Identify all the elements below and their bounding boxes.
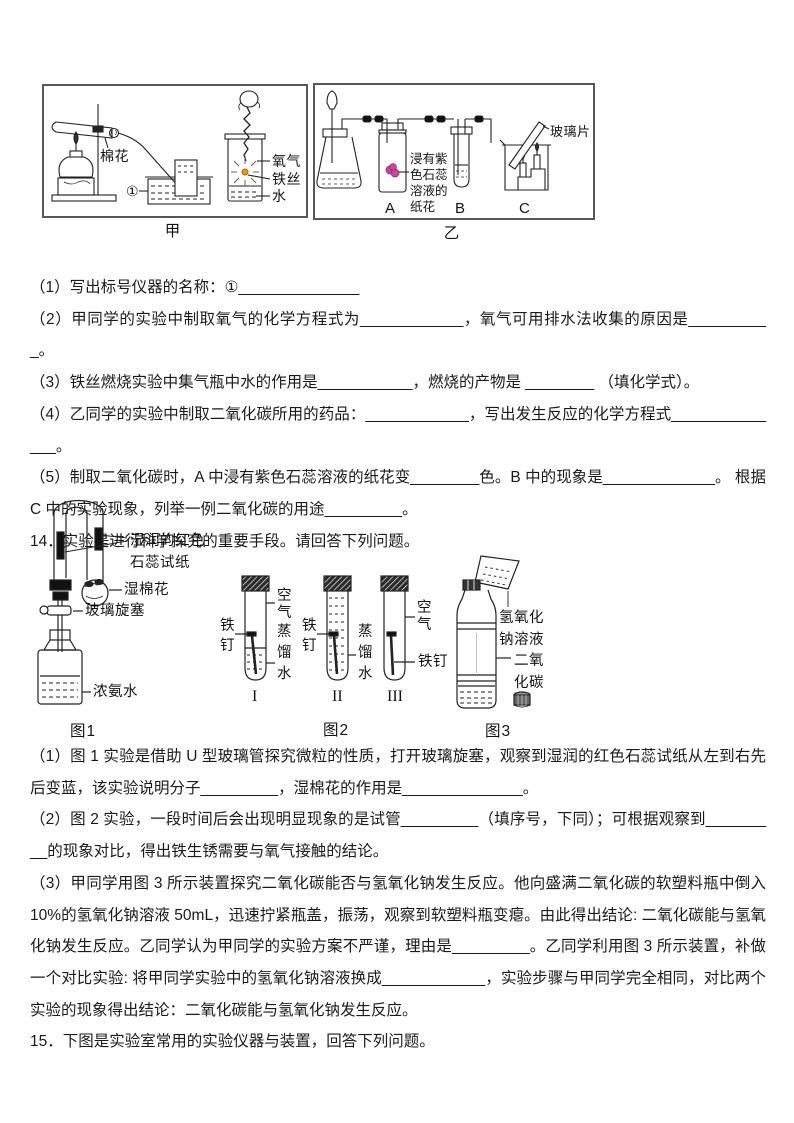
label-water: 水 [272,188,287,205]
label-cotton: 棉花 [100,148,129,165]
label-ammonia: 浓氨水 [93,684,138,701]
label-circle1: ① [126,183,139,200]
label-distilled-water-2: 蒸 馏 水 [358,622,373,685]
worksheet-page: 棉花 ① 氧气 铁丝 水 甲 [0,0,794,1123]
label-nail-3: 铁钉 [418,654,448,671]
q13-part-3: （3）铁丝燃烧实验中集气瓶中水的作用是___________，燃烧的产物是 __… [30,367,766,399]
label-glass-slide: 玻璃片 [550,123,591,140]
q14-part-3: （3）甲同学用图 3 所示装置探究二氧化碳能否与氢氧化钠发生反应。他向盛满二氧化… [30,868,766,1027]
label-bottle-a: A [385,200,396,217]
q13-part-1: （1）写出标号仪器的名称：①______________ [30,272,766,304]
caption-fig3: 图3 [478,719,518,741]
diagram-jia-box: 棉花 ① 氧气 铁丝 水 [42,84,308,218]
diagram-yi-box: 浸有紫 色石蕊 溶液的 纸花 玻璃片 A B C [313,83,595,220]
figure-2: 铁 钉 空 气 蒸 馏 水 铁 钉 蒸 馏 水 空 气 铁钉 I II III … [218,570,453,740]
numeral-iii: III [387,688,403,706]
figure-3: 氢氧化 钠溶液 二氧 化碳 图3 [455,555,575,740]
q14-part-1: （1）图 1 实验是借助 U 型玻璃管探究微粒的性质，打开玻璃旋塞，观察到湿润的… [30,741,766,804]
q13-part-2: （2）甲同学的实验中制取氧气的化学方程式为____________，氧气可用排水… [30,304,766,367]
label-air-1: 空 气 [277,588,292,622]
label-stopcock: 玻璃旋塞 [85,603,145,620]
label-co2: 二氧 化碳 [514,650,544,694]
label-distilled-water-1: 蒸 馏 水 [277,622,292,685]
label-nail-1: 铁 钉 [220,616,235,656]
q13-part-4: （4）乙同学的实验中制取二氧化碳所用的药品：____________，写出发生反… [30,399,766,462]
label-litmus-paper: 湿润的红色 石蕊试纸 [130,530,205,574]
numeral-ii: II [332,688,343,706]
q14-part-2: （2）图 2 实验，一段时间后会出现明显现象的是试管_________（填序号，… [30,804,766,867]
label-oxygen: 氧气 [272,153,301,170]
label-air-3: 空 气 [417,600,432,634]
numeral-i: I [252,688,257,706]
label-iron-wire: 铁丝 [272,171,301,188]
diagram-jia-art [44,86,306,216]
label-tube-b: B [455,200,466,217]
label-naoh-solution: 氢氧化 钠溶液 [499,607,544,651]
caption-fig1: 图1 [63,719,103,741]
diagram-yi-art [315,85,593,218]
figure-1: 湿润的红色 石蕊试纸 湿棉花 玻璃旋塞 浓氨水 图1 [25,492,237,740]
label-flower: 浸有紫 色石蕊 溶液的 纸花 [410,151,448,215]
label-wet-cotton: 湿棉花 [124,582,169,599]
question-14-block: （1）图 1 实验是借助 U 型玻璃管探究微粒的性质，打开玻璃旋塞，观察到湿润的… [30,741,766,1058]
q15-intro: 15．下图是实验室常用的实验仪器与装置，回答下列问题。 [30,1026,766,1058]
caption-jia: 甲 [42,219,304,241]
caption-yi: 乙 [313,221,591,243]
caption-fig2: 图2 [316,718,356,740]
label-beaker-c: C [519,200,530,217]
label-nail-2: 铁 钉 [302,616,317,656]
